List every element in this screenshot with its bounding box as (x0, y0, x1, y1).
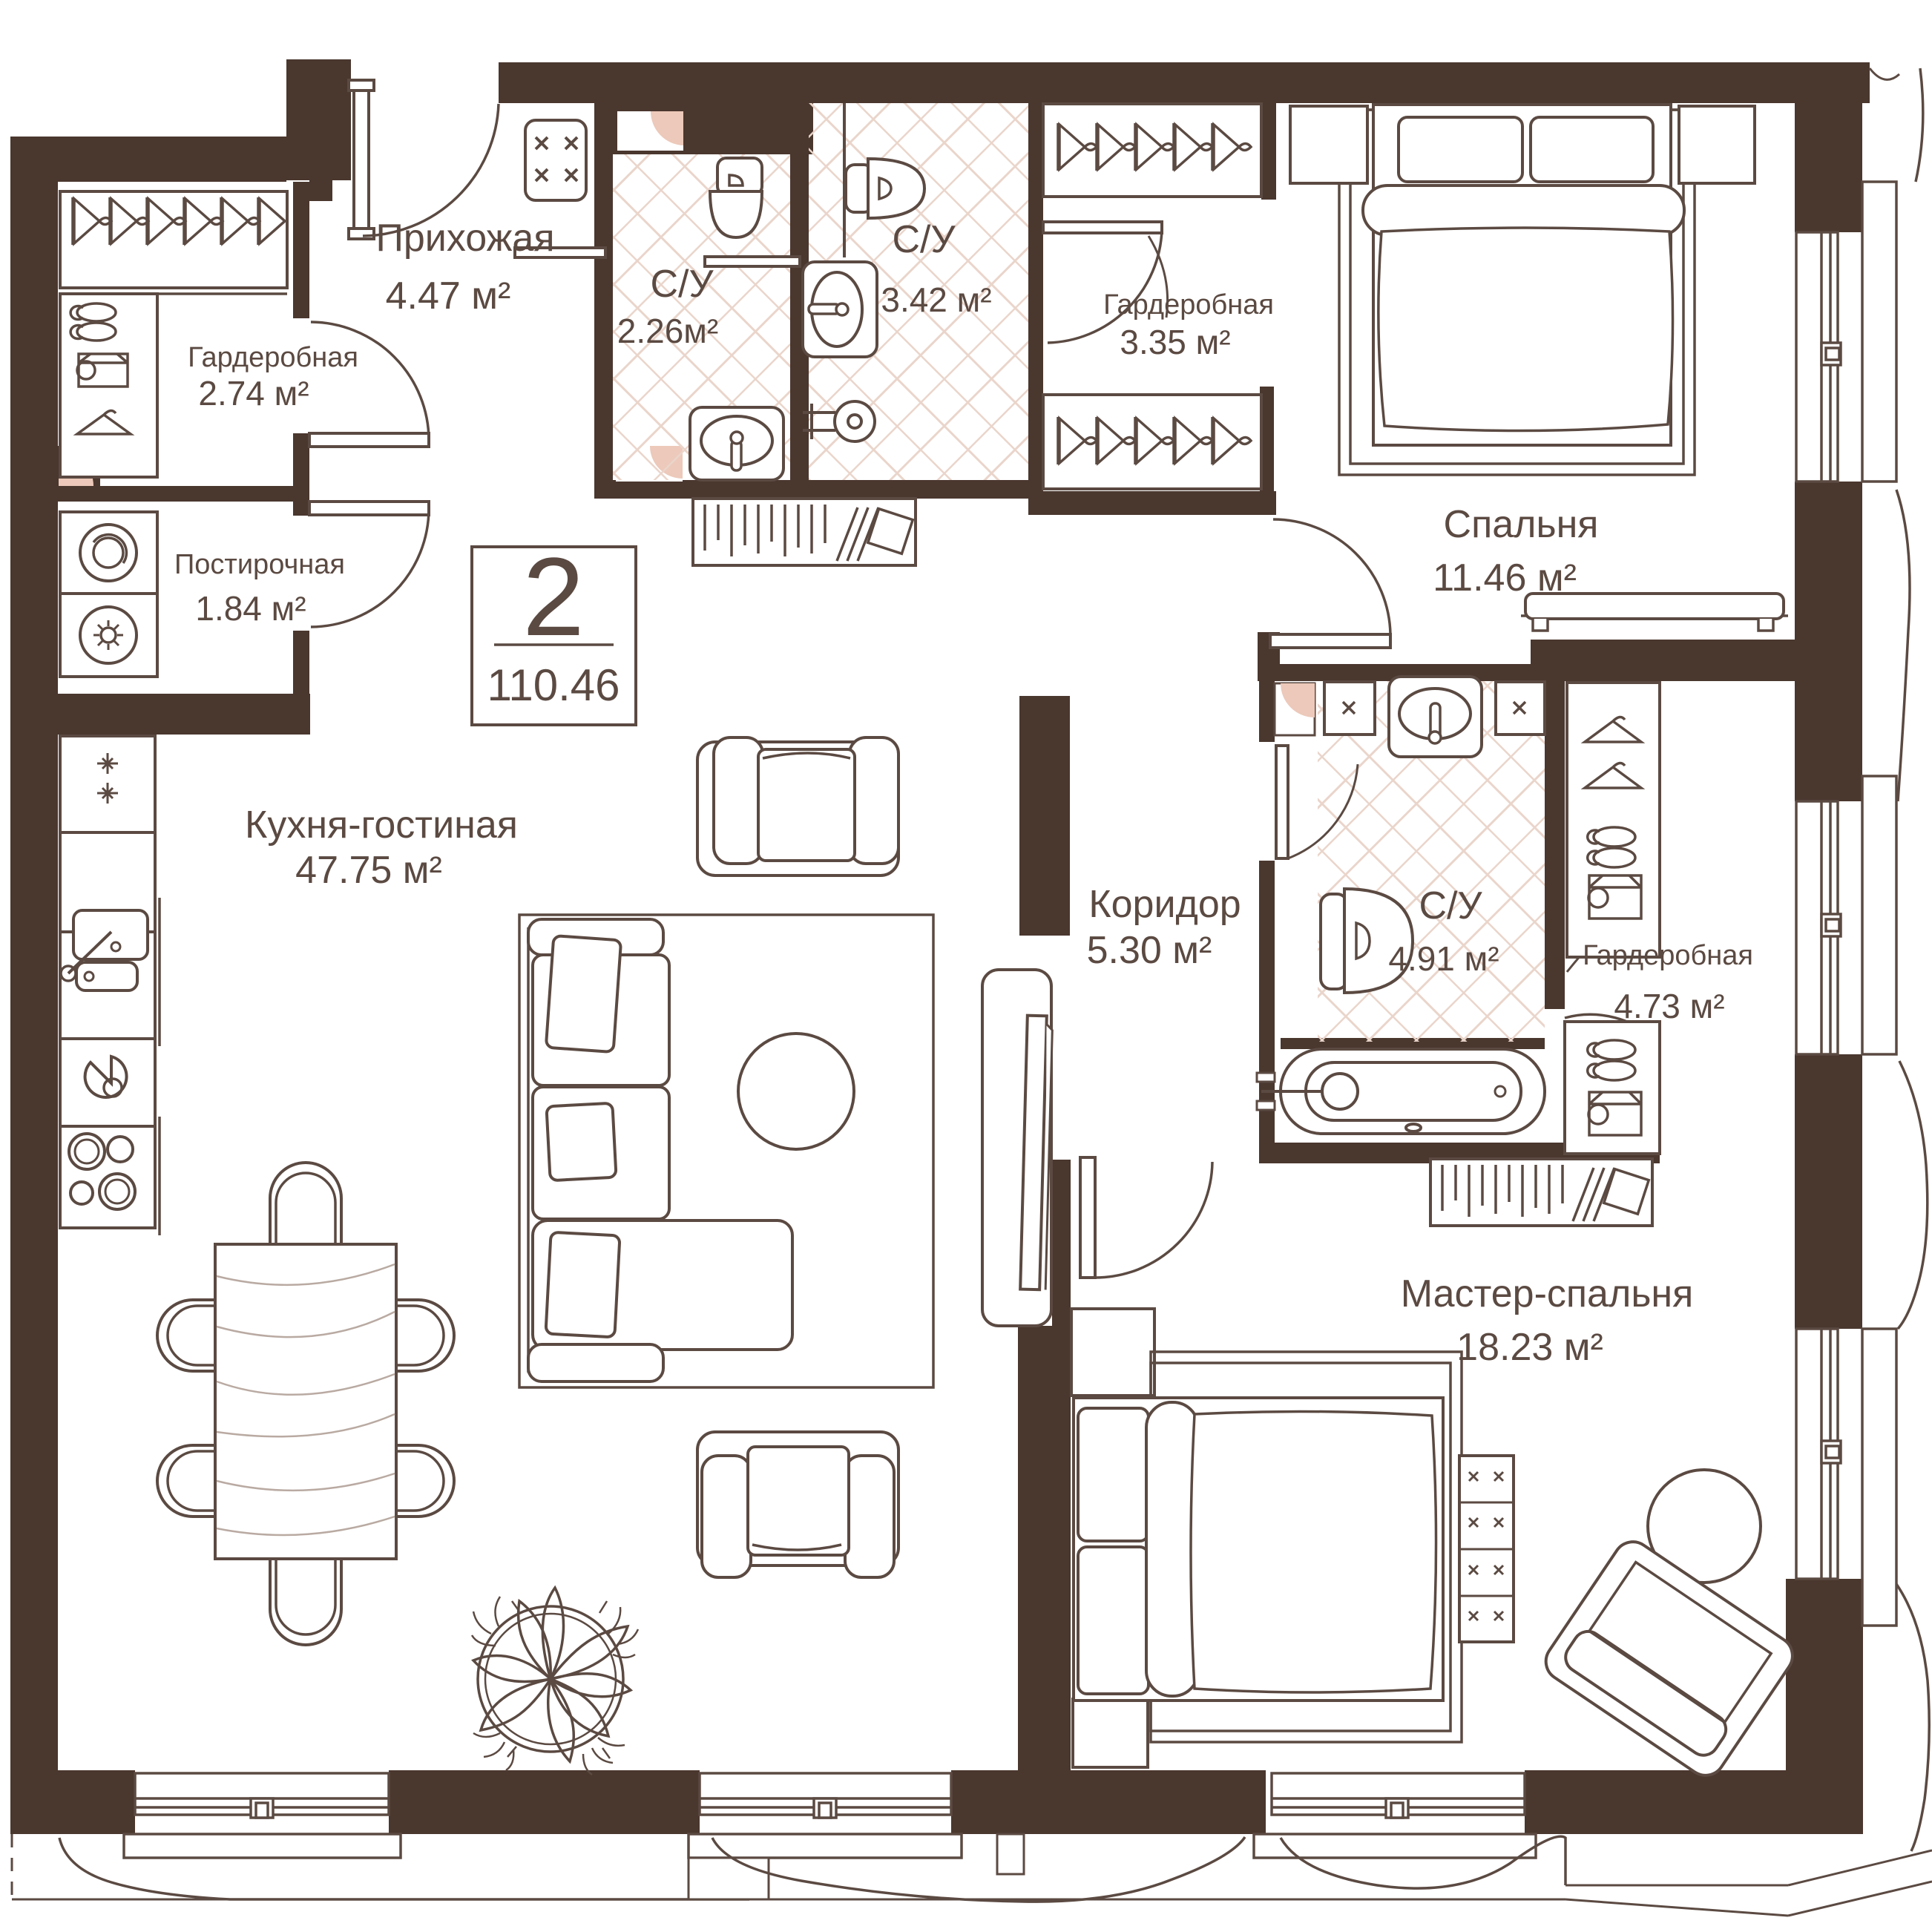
svg-text:С/У: С/У (650, 263, 714, 306)
svg-text:Гардеробная: Гардеробная (188, 342, 358, 373)
svg-text:2: 2 (522, 534, 584, 659)
svg-text:5.30 м²: 5.30 м² (1087, 929, 1212, 972)
svg-text:Постирочная: Постирочная (174, 549, 345, 580)
svg-text:110.46: 110.46 (487, 660, 620, 710)
svg-text:47.75 м²: 47.75 м² (295, 849, 442, 892)
svg-text:Гардеробная: Гардеробная (1103, 289, 1274, 321)
svg-text:3.42 м²: 3.42 м² (881, 280, 991, 319)
svg-text:Спальня: Спальня (1444, 503, 1599, 546)
svg-text:11.46 м²: 11.46 м² (1433, 556, 1577, 599)
svg-text:Гардеробная: Гардеробная (1583, 940, 1753, 971)
svg-text:1.84 м²: 1.84 м² (195, 589, 306, 628)
svg-text:3.35 м²: 3.35 м² (1120, 323, 1230, 361)
svg-text:С/У: С/У (1419, 884, 1482, 927)
svg-text:Коридор: Коридор (1088, 883, 1241, 926)
svg-text:4.73 м²: 4.73 м² (1614, 987, 1724, 1025)
svg-text:Прихожая: Прихожая (376, 217, 555, 260)
svg-text:4.47 м²: 4.47 м² (386, 275, 511, 318)
svg-text:2.74 м²: 2.74 м² (198, 374, 309, 413)
svg-text:18.23 м²: 18.23 м² (1456, 1326, 1603, 1369)
svg-text:4.91 м²: 4.91 м² (1388, 939, 1499, 978)
svg-text:2.26м²: 2.26м² (617, 312, 718, 350)
svg-text:С/У: С/У (892, 218, 956, 261)
svg-text:Мастер-спальня: Мастер-спальня (1401, 1272, 1694, 1315)
svg-text:Кухня-гостиная: Кухня-гостиная (245, 804, 518, 847)
